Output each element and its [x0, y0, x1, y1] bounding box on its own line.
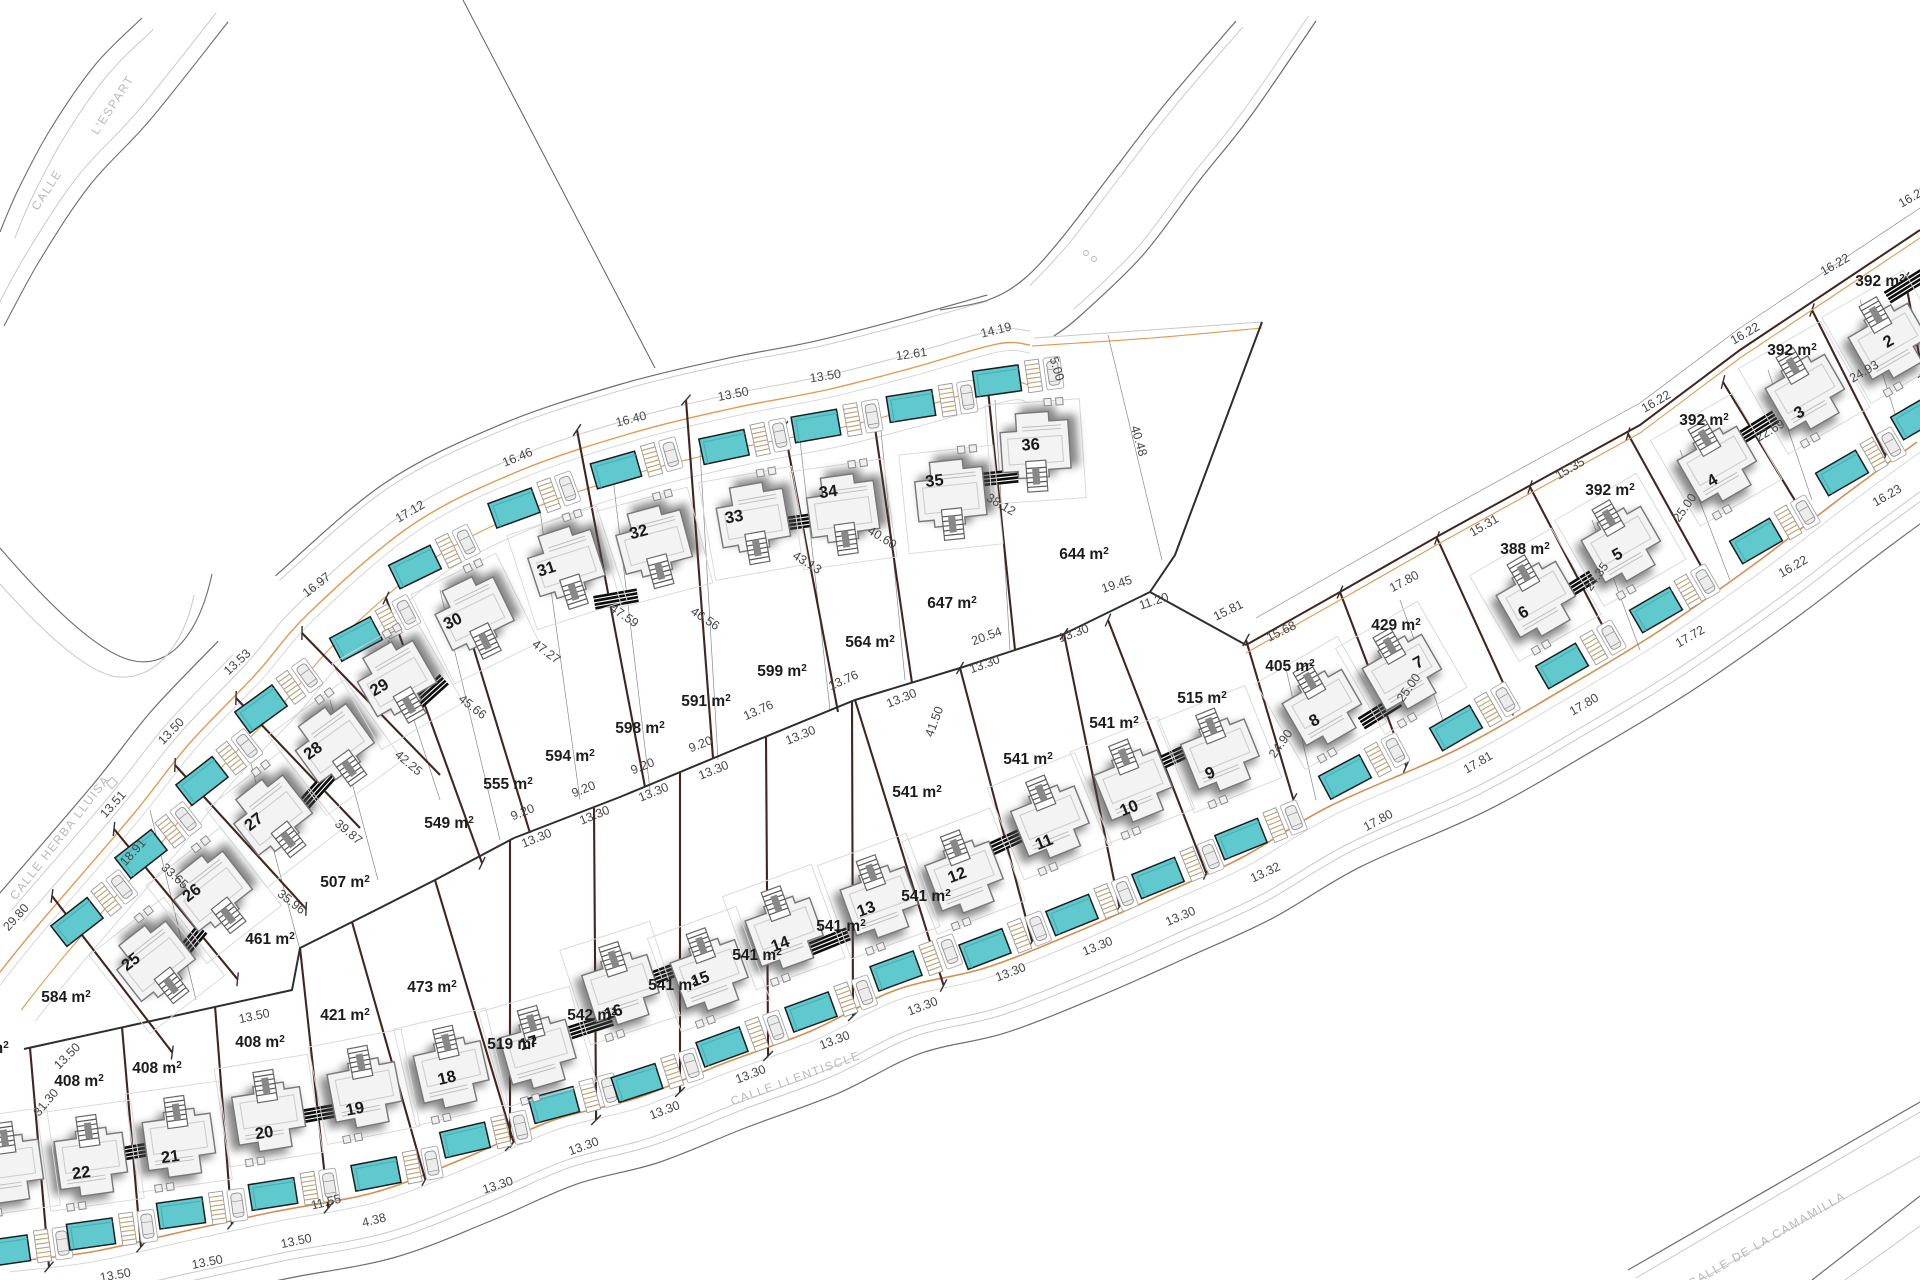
svg-text:541 m2: 541 m2: [648, 977, 698, 995]
svg-text:33: 33: [724, 507, 745, 528]
svg-text:599 m2: 599 m2: [757, 663, 807, 681]
svg-text:392 m2: 392 m2: [1585, 482, 1635, 500]
svg-text:541 m2: 541 m2: [892, 784, 942, 802]
svg-text:392 m2: 392 m2: [1767, 342, 1817, 360]
svg-text:549 m2: 549 m2: [424, 815, 474, 833]
svg-text:473 m2: 473 m2: [407, 979, 457, 997]
svg-text:19: 19: [344, 1099, 365, 1120]
svg-text:421 m2: 421 m2: [320, 1007, 370, 1025]
svg-text:584 m2: 584 m2: [41, 989, 91, 1007]
svg-text:507 m2: 507 m2: [320, 874, 370, 892]
svg-text:555 m2: 555 m2: [483, 776, 533, 794]
svg-text:35: 35: [924, 471, 944, 491]
svg-text:36: 36: [1021, 435, 1041, 454]
svg-text:408 m2: 408 m2: [235, 1034, 285, 1052]
svg-text:541 m2: 541 m2: [1089, 715, 1139, 733]
svg-text:408 m2: 408 m2: [54, 1073, 104, 1091]
svg-text:392 m2: 392 m2: [1679, 412, 1729, 430]
svg-text:408 m2: 408 m2: [132, 1060, 182, 1078]
svg-text:564 m2: 564 m2: [845, 634, 895, 652]
svg-text:591 m2: 591 m2: [681, 693, 731, 711]
svg-text:541 m2: 541 m2: [901, 888, 951, 906]
svg-text:34: 34: [818, 482, 839, 502]
svg-text:541 m2: 541 m2: [816, 918, 866, 936]
svg-text:598 m2: 598 m2: [615, 720, 665, 738]
svg-text:461 m2: 461 m2: [245, 931, 295, 949]
svg-text:594 m2: 594 m2: [545, 748, 595, 766]
svg-text:388 m2: 388 m2: [1500, 541, 1550, 559]
svg-text:20: 20: [254, 1123, 275, 1144]
svg-text:519 m2: 519 m2: [487, 1036, 537, 1054]
svg-text:542 m2: 542 m2: [567, 1007, 617, 1025]
svg-text:515 m2: 515 m2: [1177, 690, 1227, 708]
svg-text:541 m2: 541 m2: [732, 947, 782, 965]
svg-text:22: 22: [71, 1163, 92, 1183]
svg-text:21: 21: [160, 1147, 181, 1167]
svg-text:541 m2: 541 m2: [1003, 751, 1053, 769]
svg-text:644 m2: 644 m2: [1059, 546, 1109, 564]
svg-text:647 m2: 647 m2: [927, 595, 977, 613]
svg-text:429 m2: 429 m2: [1371, 617, 1421, 635]
svg-text:405 m2: 405 m2: [1265, 658, 1315, 676]
svg-text:392 m2: 392 m2: [1855, 273, 1905, 291]
